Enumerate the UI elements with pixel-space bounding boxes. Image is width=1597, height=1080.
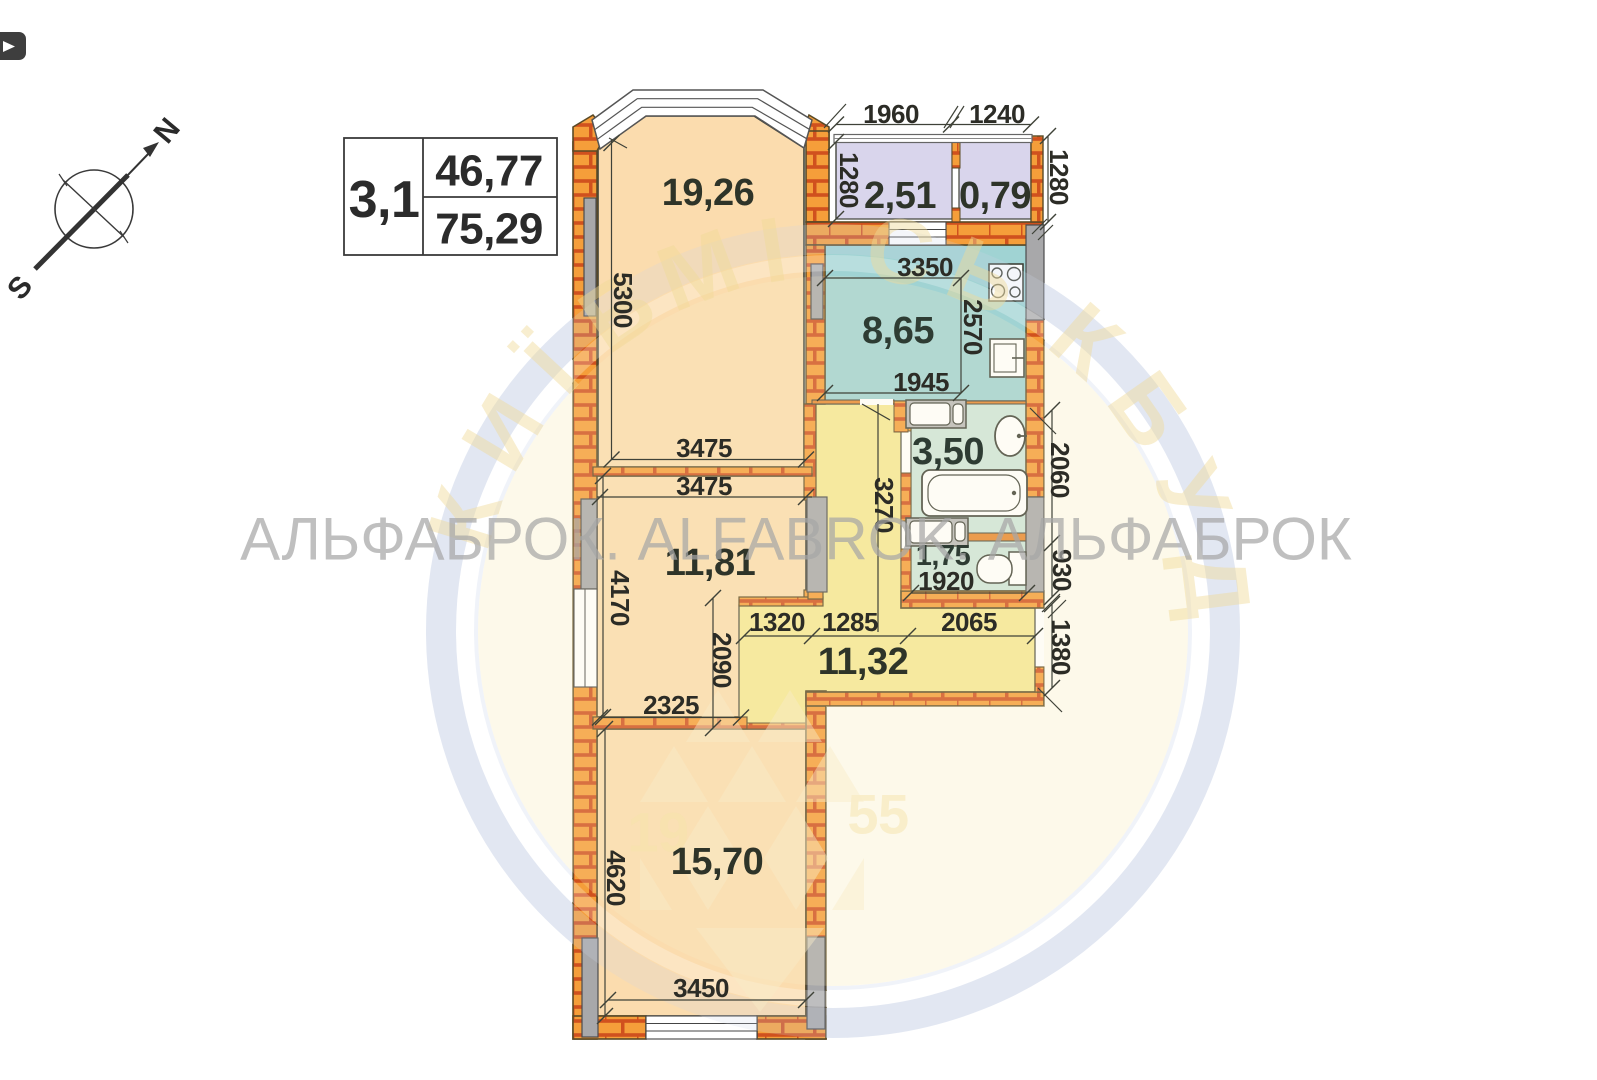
svg-text:3450: 3450 <box>673 973 729 1003</box>
svg-text:2325: 2325 <box>643 690 699 720</box>
svg-text:2,51: 2,51 <box>864 175 936 217</box>
svg-text:2060: 2060 <box>1045 442 1075 498</box>
svg-text:2090: 2090 <box>707 632 737 688</box>
svg-text:1240: 1240 <box>969 99 1025 129</box>
svg-text:19,26: 19,26 <box>662 172 755 214</box>
svg-text:2570: 2570 <box>958 299 988 355</box>
svg-text:4620: 4620 <box>601 850 631 906</box>
svg-text:46,77: 46,77 <box>435 147 543 196</box>
svg-text:3,50: 3,50 <box>912 431 984 473</box>
svg-text:2065: 2065 <box>941 607 997 637</box>
svg-text:1380: 1380 <box>1046 619 1076 675</box>
svg-text:3350: 3350 <box>897 252 953 282</box>
svg-text:15,70: 15,70 <box>671 841 764 883</box>
svg-text:0,79: 0,79 <box>959 175 1031 217</box>
svg-text:1960: 1960 <box>863 99 919 129</box>
svg-text:5300: 5300 <box>608 272 638 328</box>
svg-text:4170: 4170 <box>605 570 635 626</box>
svg-text:1285: 1285 <box>822 607 878 637</box>
svg-text:11,32: 11,32 <box>818 641 909 683</box>
svg-text:3,1: 3,1 <box>349 171 420 229</box>
svg-text:1280: 1280 <box>834 152 864 208</box>
svg-text:3475: 3475 <box>676 471 732 501</box>
svg-text:1280: 1280 <box>1044 149 1074 205</box>
svg-text:8,65: 8,65 <box>862 310 934 352</box>
svg-text:1945: 1945 <box>893 367 949 397</box>
svg-text:75,29: 75,29 <box>435 205 543 254</box>
svg-text:АЛЬФАБРОК. ALFABROK. АЛЬФАБРОК: АЛЬФАБРОК. ALFABROK. АЛЬФАБРОК <box>240 506 1352 573</box>
svg-text:3475: 3475 <box>676 433 732 463</box>
svg-text:1320: 1320 <box>749 607 805 637</box>
